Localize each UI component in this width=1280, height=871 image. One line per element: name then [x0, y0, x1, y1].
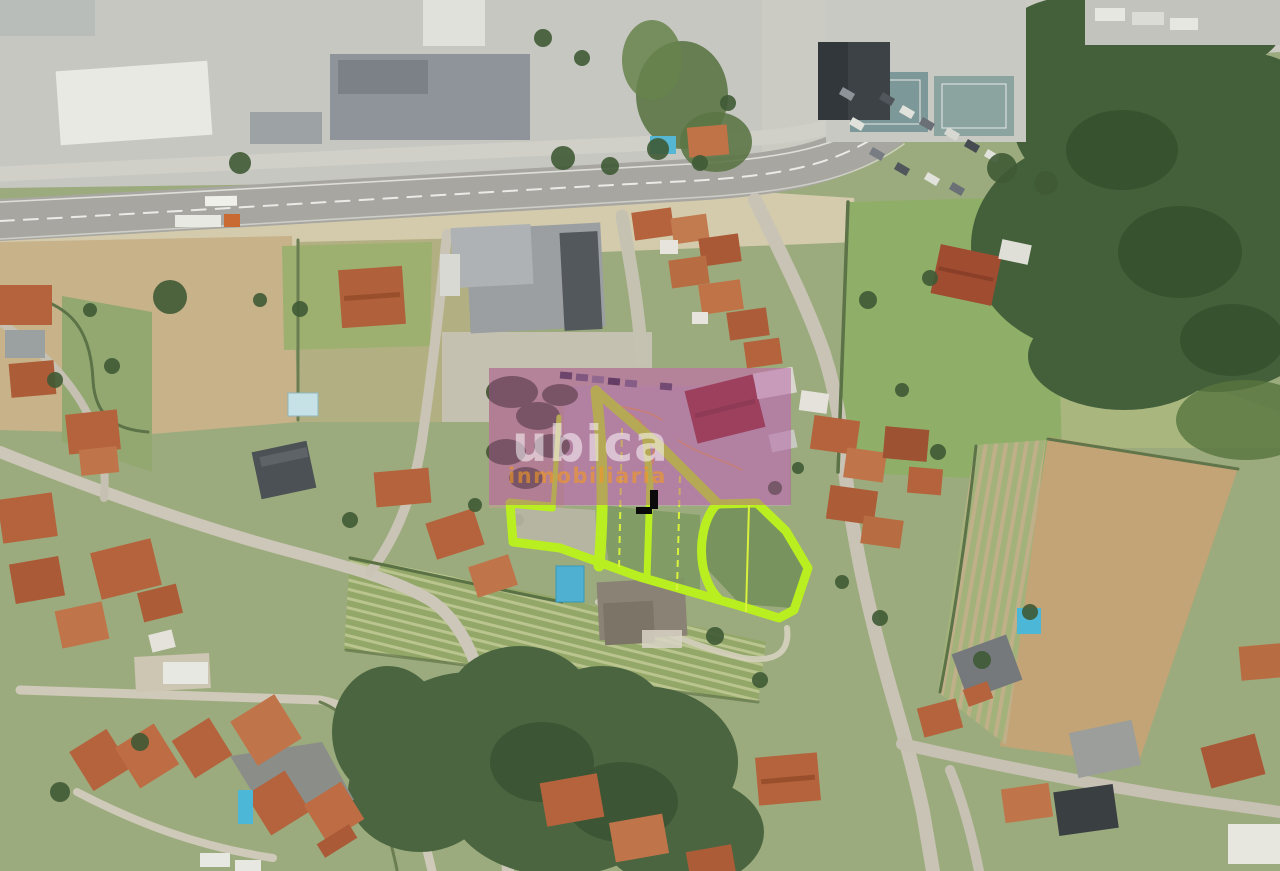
- house-terracotta: [698, 279, 744, 315]
- shed-white: [799, 390, 830, 414]
- tree: [792, 462, 804, 474]
- house-terracotta: [1001, 783, 1053, 823]
- tree: [922, 270, 938, 286]
- house-terracotta: [726, 307, 770, 340]
- tree: [987, 153, 1017, 183]
- tree: [647, 138, 669, 160]
- dark-roof-house: [1053, 784, 1119, 836]
- forest-shadow: [1118, 206, 1242, 298]
- house-terracotta: [883, 426, 930, 462]
- aerial-photo-mount: ubicainmobiliaria: [0, 0, 1280, 871]
- truck-on-road: [205, 196, 237, 207]
- tree: [720, 95, 736, 111]
- pool: [288, 393, 318, 416]
- house-terracotta: [9, 556, 65, 604]
- house-terracotta: [907, 467, 943, 496]
- nave-shadow: [559, 231, 602, 331]
- shed-white: [200, 853, 230, 867]
- aerial-photo: ubicainmobiliaria: [0, 0, 1280, 871]
- tree: [835, 575, 849, 589]
- warehouse-white: [56, 61, 213, 145]
- forest-shadow: [1066, 110, 1178, 190]
- container-orange: [224, 214, 240, 227]
- truck: [1170, 18, 1198, 30]
- building-gray: [250, 112, 322, 144]
- watermark-tagline: inmobiliaria: [508, 464, 667, 488]
- corner-marker-vertical: [650, 490, 658, 509]
- nave-gable: [450, 224, 533, 288]
- house-terracotta: [860, 515, 904, 548]
- tree: [292, 301, 308, 317]
- estate-building-white: [163, 662, 208, 684]
- tree: [692, 155, 708, 171]
- house-terracotta: [631, 207, 675, 240]
- house-terracotta: [0, 492, 58, 543]
- tree: [973, 651, 991, 669]
- tree: [229, 152, 251, 174]
- tree: [50, 782, 70, 802]
- building-white: [423, 0, 485, 46]
- grove: [622, 20, 682, 100]
- tree: [706, 627, 724, 645]
- tree: [872, 610, 888, 626]
- aerial-photo-canvas: ubicainmobiliaria: [0, 0, 1280, 871]
- tree: [752, 672, 768, 688]
- house-terracotta: [687, 124, 729, 157]
- tree: [83, 303, 97, 317]
- tree: [930, 444, 946, 460]
- shed-white: [235, 860, 261, 871]
- tree: [131, 733, 149, 751]
- tree: [574, 50, 590, 66]
- tree: [104, 358, 120, 374]
- nave-annex: [440, 254, 460, 296]
- trailer: [175, 215, 221, 227]
- house-terracotta: [374, 468, 432, 508]
- shed-white: [692, 312, 708, 324]
- truck: [1095, 8, 1125, 21]
- tree: [1034, 171, 1058, 195]
- warehouse: [0, 0, 95, 36]
- house-terracotta: [843, 447, 887, 482]
- white-building: [1228, 824, 1280, 864]
- shed-white: [660, 240, 678, 254]
- forest-shadow: [1180, 304, 1280, 376]
- sport-court: [934, 76, 1014, 136]
- tree: [253, 293, 267, 307]
- tree: [468, 498, 482, 512]
- house-terracotta: [0, 285, 52, 325]
- pool: [238, 790, 253, 824]
- factory-dark-wing: [338, 60, 428, 94]
- house-terracotta: [1239, 643, 1280, 681]
- pool: [556, 566, 584, 602]
- tree: [534, 29, 552, 47]
- tree: [1022, 604, 1038, 620]
- tree: [342, 512, 358, 528]
- dark-roof-building-shadow: [818, 42, 848, 120]
- tree: [153, 280, 187, 314]
- house-terracotta: [743, 338, 782, 369]
- tree: [47, 372, 63, 388]
- tree: [551, 146, 575, 170]
- house-terracotta: [668, 255, 710, 288]
- house-gray: [5, 330, 45, 358]
- truck: [1132, 12, 1164, 25]
- terrace: [642, 630, 682, 648]
- house-terracotta: [79, 446, 120, 476]
- forest-south: [332, 666, 444, 798]
- corner-marker-horizontal: [636, 507, 652, 514]
- tree: [895, 383, 909, 397]
- tree: [859, 291, 877, 309]
- tree: [601, 157, 619, 175]
